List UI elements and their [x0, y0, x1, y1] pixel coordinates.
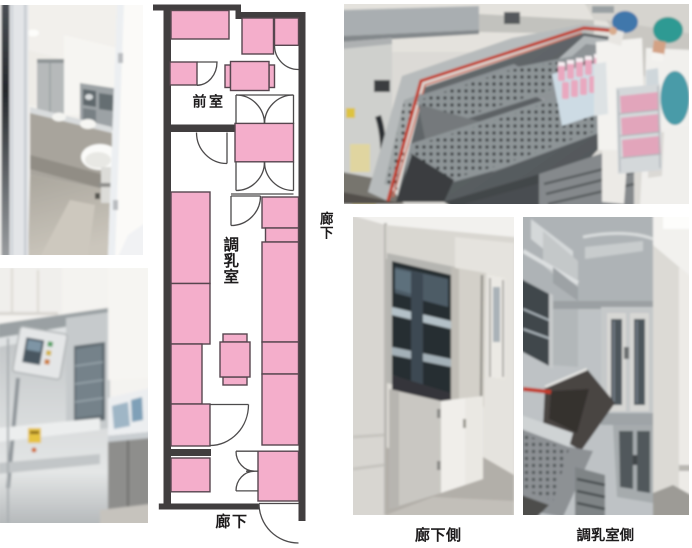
svg-text:調: 調: [224, 235, 240, 254]
svg-text:下: 下: [320, 226, 334, 241]
svg-text:前室: 前室: [193, 93, 226, 109]
svg-text:乳: 乳: [224, 251, 240, 270]
svg-text:調乳室側: 調乳室側: [577, 526, 635, 544]
svg-text:室: 室: [224, 267, 240, 286]
svg-text:廊下側: 廊下側: [415, 526, 462, 544]
svg-text:廊下: 廊下: [216, 513, 249, 531]
svg-text:廊: 廊: [320, 211, 334, 227]
